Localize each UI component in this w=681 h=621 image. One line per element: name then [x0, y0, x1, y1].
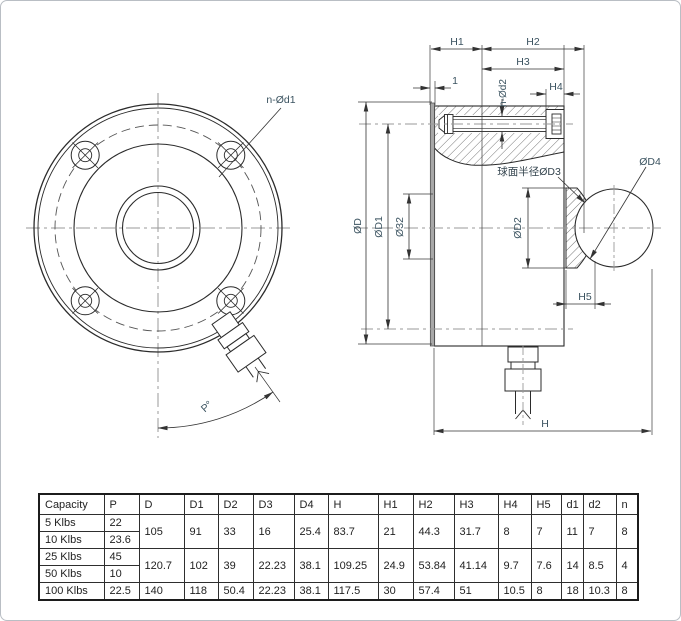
label-h: H	[541, 418, 549, 430]
column-header: D4	[294, 494, 328, 515]
table-cell: 16	[253, 515, 294, 549]
column-header: P	[104, 494, 139, 515]
table-cell: 8	[531, 583, 561, 601]
label-dia-d2: ØD2	[512, 217, 524, 239]
table-cell: 117.5	[328, 583, 378, 601]
table-cell: 10.5	[498, 583, 531, 601]
table-cell: 5 Klbs	[39, 515, 104, 532]
table-cell: 39	[218, 549, 253, 583]
table-cell: 38.1	[294, 583, 328, 601]
table-cell: 9.7	[498, 549, 531, 583]
label-1: 1	[452, 75, 458, 87]
label-n-d1: n-Ød1	[266, 94, 295, 106]
table-cell: 118	[184, 583, 218, 601]
column-header: d2	[583, 494, 616, 515]
table-cell: 44.3	[413, 515, 454, 549]
flange-section-hatched	[435, 106, 565, 165]
table-cell: 22	[104, 515, 139, 532]
label-h3: H3	[516, 56, 530, 68]
angle-dimension	[158, 367, 280, 428]
bolt-hole	[71, 287, 99, 315]
table-cell: 33	[218, 515, 253, 549]
table-cell: 14	[561, 549, 583, 583]
table-cell: 38.1	[294, 549, 328, 583]
table-cell: 7.6	[531, 549, 561, 583]
table-cell: 7	[531, 515, 561, 549]
table-cell: 102	[184, 549, 218, 583]
table-cell: 91	[184, 515, 218, 549]
bolt-hole	[217, 141, 245, 169]
label-p-angle: P°	[199, 399, 215, 415]
column-header: H4	[498, 494, 531, 515]
bolt-hole	[71, 141, 99, 169]
table-cell: 22.23	[253, 583, 294, 601]
column-header: d1	[561, 494, 583, 515]
label-h2: H2	[526, 36, 540, 48]
front-view	[26, 93, 294, 438]
table-header-row: CapacityPDD1D2D3D4HH1H2H3H4H5d1d2n	[39, 494, 638, 515]
table-cell: 18	[561, 583, 583, 601]
table-cell: 8	[616, 583, 638, 601]
table-cell: 10	[104, 566, 139, 583]
table-cell: 10.3	[583, 583, 616, 601]
technical-drawing: n-Ød1 P° H1 H2 H3 H4 1 n-Ød2 ØD ØD1 Ø32 …	[1, 1, 681, 491]
column-header: Capacity	[39, 494, 104, 515]
table-cell: 83.7	[328, 515, 378, 549]
bolt-hole	[217, 287, 245, 315]
table-cell: 24.9	[378, 549, 413, 583]
column-header: H1	[378, 494, 413, 515]
table-cell: 22.23	[253, 549, 294, 583]
table-cell: 50.4	[218, 583, 253, 601]
column-header: H	[328, 494, 378, 515]
label-dia-d1: ØD1	[373, 216, 385, 238]
label-sphere-radius-d3: 球面半径ØD3	[497, 165, 561, 178]
column-header: n	[616, 494, 638, 515]
label-dia-d: ØD	[352, 218, 364, 234]
table-cell: 45	[104, 549, 139, 566]
label-h1: H1	[450, 36, 464, 48]
table-cell: 7	[583, 515, 616, 549]
label-n-d2: n-Ød2	[498, 79, 509, 107]
spec-table: CapacityPDD1D2D3D4HH1H2H3H4H5d1d2n 5 Klb…	[38, 493, 639, 601]
table-row: 5 Klbs2210591331625.483.72144.331.787117…	[39, 515, 638, 532]
column-header: H2	[413, 494, 454, 515]
cable-connector-front	[207, 308, 277, 387]
table-cell: 41.14	[454, 549, 498, 583]
table-cell: 105	[139, 515, 184, 549]
table-row: 100 Klbs22.514011850.422.2338.1117.53057…	[39, 583, 638, 601]
table-cell: 50 Klbs	[39, 566, 104, 583]
table-cell: 51	[454, 583, 498, 601]
engineering-drawing-page: n-Ød1 P° H1 H2 H3 H4 1 n-Ød2 ØD ØD1 Ø32 …	[0, 0, 681, 621]
table-cell: 120.7	[139, 549, 184, 583]
table-cell: 22.5	[104, 583, 139, 601]
table-cell: 25 Klbs	[39, 549, 104, 566]
table-cell: 8	[498, 515, 531, 549]
table-cell: 10 Klbs	[39, 532, 104, 549]
table-cell: 31.7	[454, 515, 498, 549]
label-dia-d4: ØD4	[639, 156, 661, 168]
column-header: D2	[218, 494, 253, 515]
column-header: H5	[531, 494, 561, 515]
table-cell: 57.4	[413, 583, 454, 601]
table-cell: 100 Klbs	[39, 583, 104, 601]
table-cell: 21	[378, 515, 413, 549]
table-cell: 8	[616, 515, 638, 549]
column-header: D1	[184, 494, 218, 515]
table-cell: 53.84	[413, 549, 454, 583]
table-cell: 30	[378, 583, 413, 601]
column-header: H3	[454, 494, 498, 515]
table-cell: 11	[561, 515, 583, 549]
label-h4: H4	[549, 81, 563, 93]
table-cell: 8.5	[583, 549, 616, 583]
table-cell: 4	[616, 549, 638, 583]
table-row: 25 Klbs45120.71023922.2338.1109.2524.953…	[39, 549, 638, 566]
table-cell: 23.6	[104, 532, 139, 549]
table-cell: 140	[139, 583, 184, 601]
table-cell: 25.4	[294, 515, 328, 549]
label-dia-32: Ø32	[394, 217, 406, 237]
membrane-plate	[430, 103, 434, 346]
table-cell: 109.25	[328, 549, 378, 583]
column-header: D3	[253, 494, 294, 515]
column-header: D	[139, 494, 184, 515]
label-h5: H5	[578, 291, 592, 303]
